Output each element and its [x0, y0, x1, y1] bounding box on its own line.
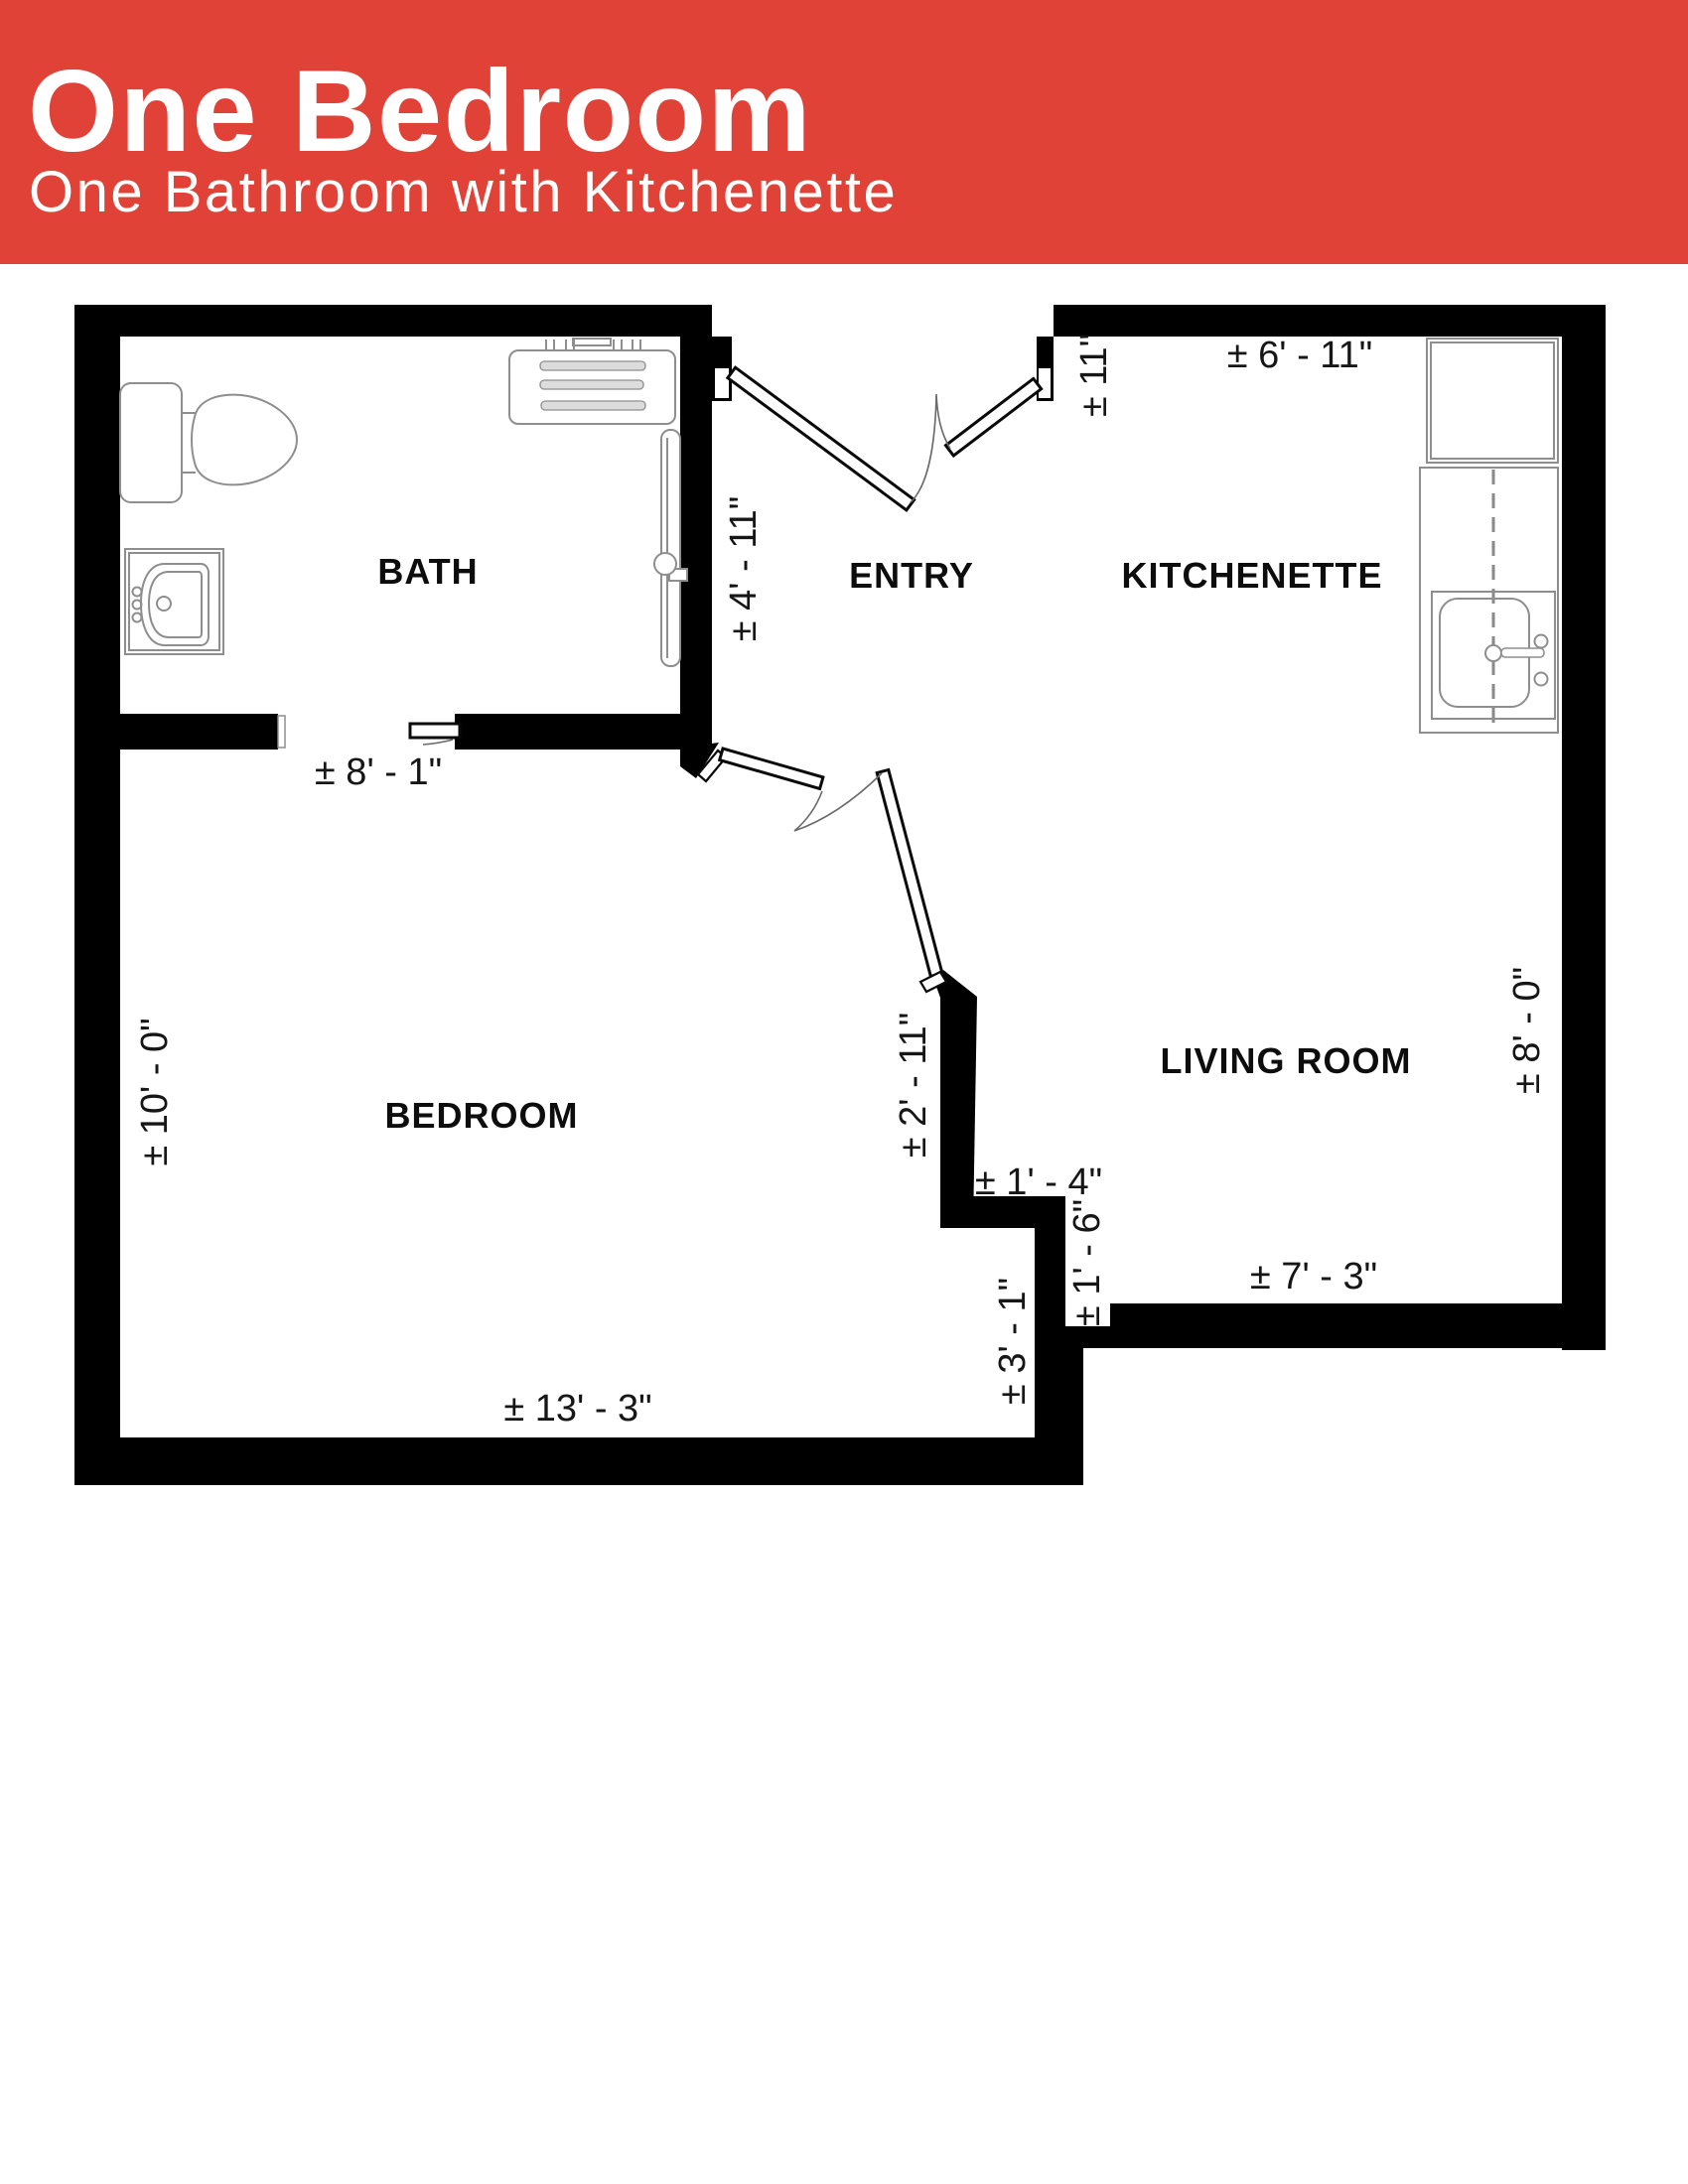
svg-text:± 1' - 6": ± 1' - 6" — [1066, 1199, 1108, 1326]
svg-text:KITCHENETTE: KITCHENETTE — [1122, 555, 1383, 596]
svg-text:± 6' - 11": ± 6' - 11" — [1227, 335, 1373, 376]
svg-text:± 8' - 0": ± 8' - 0" — [1506, 967, 1548, 1094]
svg-text:ENTRY: ENTRY — [849, 555, 974, 596]
svg-text:± 8' - 1": ± 8' - 1" — [315, 751, 442, 793]
svg-text:± 2' - 11": ± 2' - 11" — [893, 1013, 934, 1159]
svg-text:± 11": ± 11" — [1073, 334, 1115, 417]
svg-text:± 7' - 3": ± 7' - 3" — [1250, 1256, 1377, 1297]
svg-text:± 13' - 3": ± 13' - 3" — [503, 1388, 651, 1430]
svg-text:± 1' - 4": ± 1' - 4" — [975, 1161, 1102, 1203]
svg-text:BEDROOM: BEDROOM — [385, 1095, 579, 1136]
svg-text:LIVING ROOM: LIVING ROOM — [1161, 1040, 1412, 1081]
svg-text:± 10' - 0": ± 10' - 0" — [134, 1018, 176, 1165]
svg-text:BATH: BATH — [377, 551, 478, 592]
svg-text:± 3' - 1": ± 3' - 1" — [992, 1278, 1034, 1405]
svg-text:± 4' - 11": ± 4' - 11" — [723, 496, 765, 642]
